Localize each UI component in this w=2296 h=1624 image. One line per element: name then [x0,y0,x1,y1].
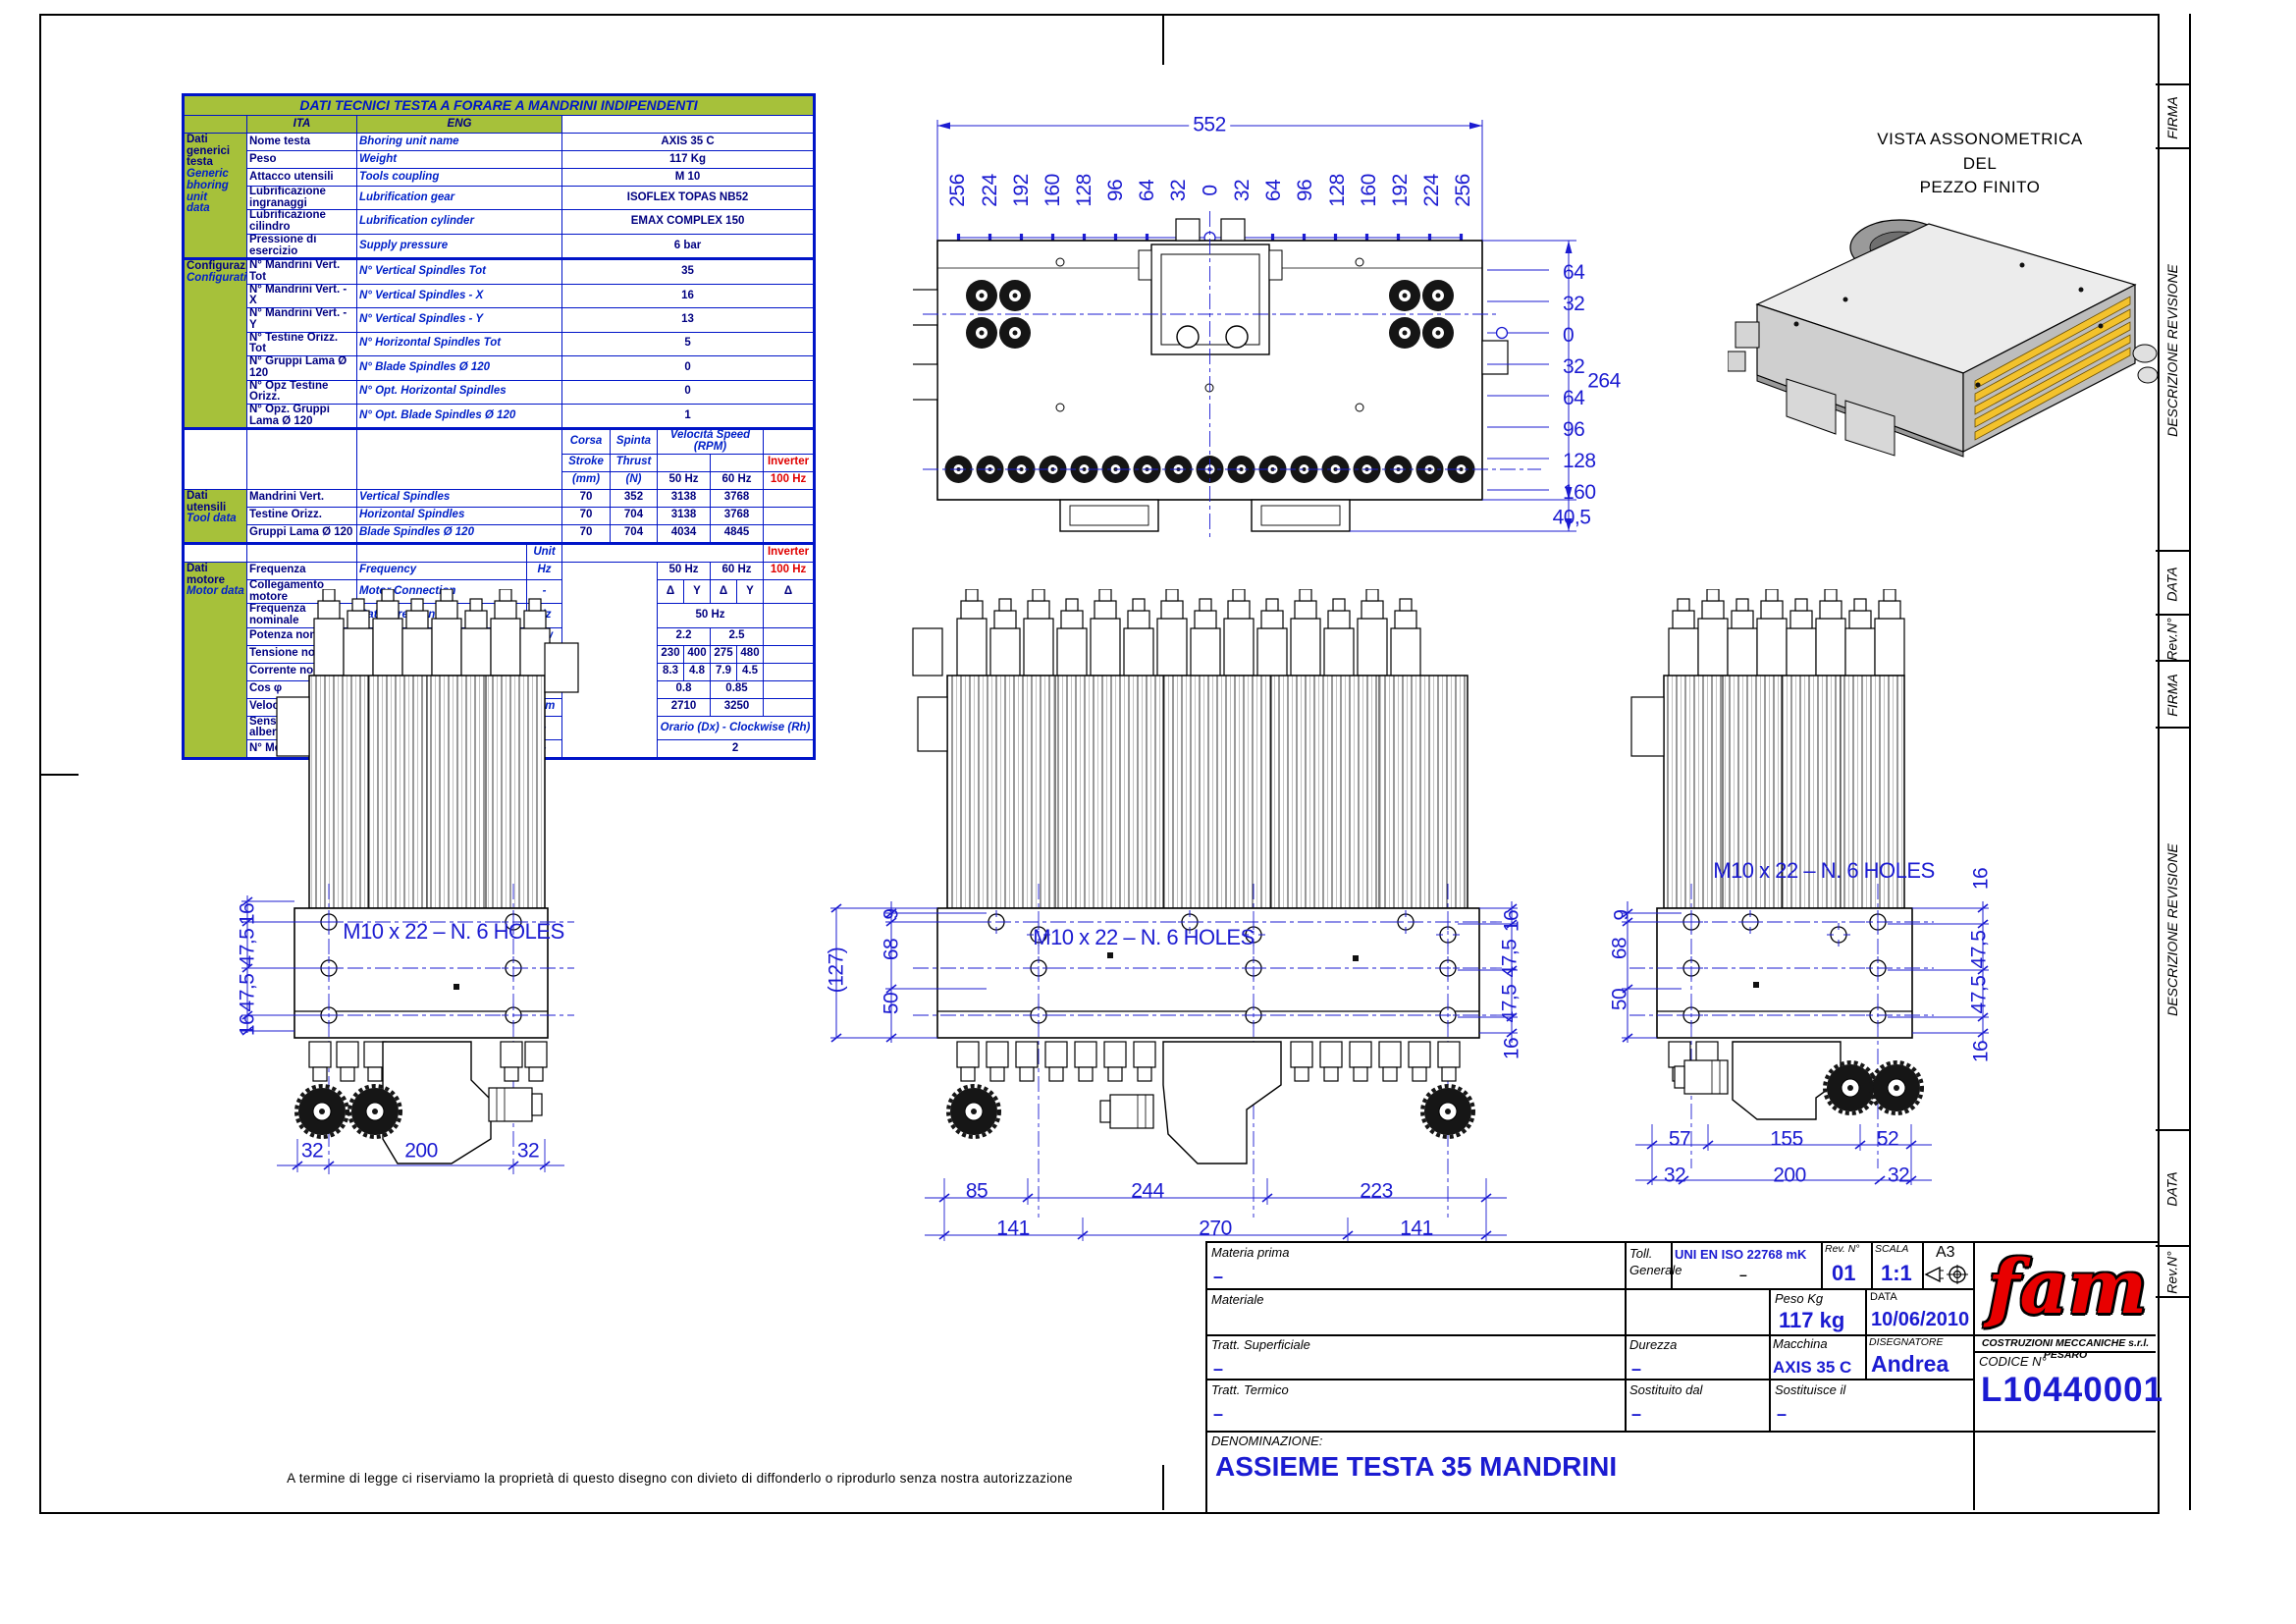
sost-il-value: – [1777,1404,1787,1425]
holes-note: M10 x 22 – N. 6 HOLES [1033,927,1255,948]
dim-label: 223 [1360,1181,1393,1202]
dim-label: 64 [1563,257,1596,289]
cell-ita: Gruppi Lama Ø 120 [247,524,357,543]
unit-inverter: Inverter [764,543,815,562]
data-value: 10/06/2010 [1871,1309,1969,1331]
cell-spinta: 704 [611,507,658,524]
iso-title-line3: PEZZO FINITO [1920,178,2041,197]
dim-label: 160 [1563,477,1596,509]
toll-value: UNI EN ISO 22768 mK [1675,1247,1806,1262]
cell-eng: Vertical Spindles [357,489,562,507]
dim-label: 200 [1773,1165,1806,1186]
unit-header: Unit [527,543,562,562]
section-label-config: Configurazione Configuration [184,259,247,429]
peso-value: 117 kg [1779,1308,1844,1333]
centering-mark [1162,1465,1164,1510]
top-ordinate-labels: 2562241921601289664320326496128160192224… [942,153,1480,228]
dim-label: 85 [966,1181,988,1202]
rev-n-label: Rev.N° [2164,618,2180,660]
dim-label: 244 [1131,1181,1164,1202]
cell-eng: N° Vertical Spindles - X [357,284,562,307]
tool-header-60hz: 60 Hz [711,471,764,489]
toll-label: Toll. [1629,1246,1652,1261]
cell-eng: N° Vertical Spindles Tot [357,259,562,284]
dim-label: 32 [301,1141,323,1162]
holes-note: M10 x 22 – N. 6 HOLES [1713,860,1935,882]
cell-corsa: 70 [562,507,611,524]
cell-eng: N° Opt. Horizontal Spindles [357,380,562,404]
left-view-linework [241,589,578,1178]
tool-header-mm: (mm) [562,471,611,489]
cell-corsa: 70 [562,524,611,543]
projection-symbol-icon [1924,1265,1971,1284]
dim-label: 160 [1358,174,1381,207]
legal-disclaimer: A termine di legge ci riserviamo la prop… [231,1471,1129,1486]
cell-v50: 3138 [658,489,711,507]
cell-v60: 4845 [711,524,764,543]
dim-label: 16 [238,1014,258,1036]
scala-value: 1:1 [1881,1261,1912,1286]
dim-label: 47,5 [238,929,258,967]
denominazione-value: ASSIEME TESTA 35 MANDRINI [1215,1451,1617,1483]
scala-label: SCALA [1875,1243,1908,1255]
cell-value: 35 [562,259,815,284]
drawing-sheet: FIRMA DESCRIZIONE REVISIONE DATA Rev.N° … [0,0,2296,1624]
dim-label: 192 [1009,174,1033,207]
col-header-eng: ENG [357,116,562,134]
dim-label: 32 [1167,180,1191,201]
durezza-label: Durezza [1629,1337,1677,1352]
dim-label: 141 [996,1218,1030,1239]
tratt-sup-label: Tratt. Superficiale [1211,1337,1310,1352]
cell-ita: Nome testa [247,134,357,151]
motor-header-50hz: 50 Hz [658,562,711,579]
dim-label: 47,5 [238,974,258,1012]
dim-label: 16 [238,903,258,925]
cell-eng: Bhoring unit name [357,134,562,151]
cell-v50: 3138 [658,507,711,524]
dim-label: 96 [1104,180,1128,201]
cell-eng: N° Horizontal Spindles Tot [357,332,562,355]
cell-spinta: 352 [611,489,658,507]
tool-header-spinta: Spinta [611,429,658,454]
col-header-ita: ITA [247,116,357,134]
cell-ita: Testine Orizz. [247,507,357,524]
dim-label: 57 [1669,1129,1690,1150]
cell-ita: Lubrificazione ingranaggi [247,187,357,210]
firma-label: FIRMA [2164,96,2180,139]
sost-dal-label: Sostituito dal [1629,1382,1702,1397]
dim-label: 47,5 [1500,940,1521,978]
tool-header-velocita: Velocità Speed (RPM) [658,429,764,454]
dim-label: 64 [1262,180,1286,201]
toll-label2: Generale [1629,1263,1682,1277]
data-label: DATA [1870,1291,1897,1303]
dim-label: 47,5 [1969,931,1990,969]
sost-il-label: Sostituisce il [1775,1382,1845,1397]
fam-logo: fam [1981,1243,2154,1329]
format-label: A3 [1936,1244,1955,1262]
cell-eng: Frequency [357,562,527,579]
descrizione-revisione-label: DESCRIZIONE REVISIONE [2164,843,2180,1016]
cell-value: M 10 [562,169,815,187]
section-label-generic: Dati generici testa Generic bhoring unit… [184,134,247,259]
dim-label: 9 [881,908,902,919]
rev-value: 01 [1832,1261,1855,1286]
cell-value: 13 [562,308,815,332]
tool-header-thrust: Thrust [611,454,658,471]
denominazione-label: DENOMINAZIONE: [1211,1434,1322,1448]
cell-value: 0 [562,380,815,404]
cell-eng: Tools coupling [357,169,562,187]
motor-header-60hz: 60 Hz [711,562,764,579]
isometric-view-image [1728,206,2160,471]
dim-label: 0 [1200,185,1223,195]
cell-value: 16 [562,284,815,307]
firma-label: FIRMA [2164,674,2180,717]
codice-value: L10440001 [1981,1371,2163,1410]
cell-ita: N° Testine Orizz. Tot [247,332,357,355]
descrizione-revisione-label: DESCRIZIONE REVISIONE [2164,264,2180,437]
macchina-label: Macchina [1773,1336,1828,1351]
revision-strip-cell-data2: DATA [2156,1129,2189,1247]
cell-eng: Weight [357,151,562,169]
dim-label: 96 [1294,180,1317,201]
cell-corsa: 70 [562,489,611,507]
iso-title-line1: VISTA ASSONOMETRICA [1877,130,2082,149]
centering-mark [1162,14,1164,65]
cell-ita: N° Mandrini Vert. - X [247,284,357,307]
dim-label: 192 [1389,174,1413,207]
dim-label: 224 [1420,174,1444,207]
dim-label: 96 [1563,414,1596,446]
cell-eng: Lubrification gear [357,187,562,210]
disegnatore-label: DISEGNATORE [1869,1336,1943,1348]
revision-strip-cell-descrizione2: DESCRIZIONE REVISIONE [2156,727,2189,1131]
right-view-linework [1622,589,1989,1185]
cell-v60: 3768 [711,507,764,524]
holes-note: M10 x 22 – N. 6 HOLES [343,921,564,943]
cell-ita: Attacco utensili [247,169,357,187]
dim-label: 16 [1502,1038,1522,1059]
materia-prima-label: Materia prima [1211,1245,1289,1260]
dim-label: 52 [1877,1129,1898,1150]
tool-header-stroke: Stroke [562,454,611,471]
dim-label: 270 [1199,1218,1232,1239]
tratt-term-value: – [1213,1404,1223,1425]
dim-label: 64 [1136,180,1159,201]
codice-label: CODICE N° [1979,1354,2047,1369]
disegnatore-value: Andrea [1871,1351,1949,1378]
dim-label: 32 [1888,1165,1909,1186]
dim-label: 128 [1563,446,1596,477]
dim-label: 128 [1073,174,1096,207]
dim-label: 32 [1664,1165,1685,1186]
dim-top-height: 264 [1584,371,1624,392]
dim-label: 32 [1231,180,1255,201]
dim-top-foot: 40,5 [1553,508,1591,528]
tool-header-corsa: Corsa [562,429,611,454]
cell-ita: N° Opz. Gruppi Lama Ø 120 [247,404,357,428]
table-title: DATI TECNICI TESTA A FORARE A MANDRINI I… [184,95,815,116]
cell-ita: N° Opz Testine Orizz. [247,380,357,404]
dim-label: 256 [946,174,970,207]
materiale-label: Materiale [1211,1292,1263,1307]
cell-eng: Supply pressure [357,234,562,258]
revision-strip-cell-firma: FIRMA [2156,83,2189,149]
cell-eng: Lubrification cylinder [357,210,562,234]
dim-top-width: 552 [1189,115,1230,135]
dim-label: 128 [1325,174,1349,207]
cell-value: AXIS 35 C [562,134,815,151]
dim-label: 50 [881,993,902,1014]
dim-label: 9 [1612,909,1632,920]
tratt-term-label: Tratt. Termico [1211,1382,1289,1397]
dim-label: 141 [1400,1218,1433,1239]
dim-label: 16 [1971,1041,1992,1062]
cell-value: 6 bar [562,234,815,258]
dim-label: 47,5 [1969,976,1990,1014]
macchina-value: AXIS 35 C [1773,1358,1851,1378]
materia-prima-value: – [1213,1267,1223,1287]
data-label: DATA [2164,1171,2180,1206]
dim-label: 16 [1502,910,1522,932]
revision-strip-cell-descrizione: DESCRIZIONE REVISIONE [2156,147,2189,552]
tool-header-100hz: 100 Hz [764,471,815,489]
cell-ita: N° Mandrini Vert. - Y [247,308,357,332]
revision-strip-cell-revn: Rev.N° [2156,614,2189,662]
cell-ita: Lubrificazione cilindro [247,210,357,234]
dim-label: 256 [1452,174,1475,207]
cell-ita: N° Gruppi Lama Ø 120 [247,356,357,380]
cell-unit: Hz [527,562,562,579]
cell-eng: N° Blade Spindles Ø 120 [357,356,562,380]
cell-value: ISOFLEX TOPAS NB52 [562,187,815,210]
iso-title-line2: DEL [1963,154,1998,174]
cell-ita: Pressione di esercizio [247,234,357,258]
revision-strip-cell-data: DATA [2156,550,2189,616]
cell-v50: 4034 [658,524,711,543]
peso-label: Peso Kg [1775,1291,1823,1306]
dim-label: 68 [1610,938,1630,959]
dim-label: 50 [1610,989,1630,1010]
motor-header-100hz: 100 Hz [764,562,815,579]
cell-ita: Mandrini Vert. [247,489,357,507]
cell-value: 5 [562,332,815,355]
dim-label: 155 [1770,1129,1803,1150]
cell-v60: 3768 [711,489,764,507]
section-label-tool: Dati utensili Tool data [184,489,247,543]
cell-ita: N° Mandrini Vert. Tot [247,259,357,284]
tool-header-50hz: 50 Hz [658,471,711,489]
dim-label: 16 [1971,868,1992,890]
revision-strip-cell-revn2: Rev.N° [2156,1245,2189,1298]
revision-strip-cell-firma2: FIRMA [2156,660,2189,729]
tool-header-inverter: Inverter [764,454,815,471]
centering-mark [39,774,79,776]
dim-label: 68 [881,939,902,960]
cell-spinta: 704 [611,524,658,543]
cell-value: 0 [562,356,815,380]
cell-value: 1 [562,404,815,428]
cell-value: 117 Kg [562,151,815,169]
data-label: DATA [2164,567,2180,601]
cell-eng: Blade Spindles Ø 120 [357,524,562,543]
center-view-linework [830,589,1518,1241]
durezza-value: – [1631,1359,1641,1380]
dim-label: 47,5 [1500,985,1521,1023]
rev-n-label: Rev.N° [2164,1251,2180,1293]
cell-ita: Peso [247,151,357,169]
rev-label: Rev. N° [1825,1243,1860,1255]
dim-label: 224 [978,174,1001,207]
dim-label: 160 [1041,174,1065,207]
cell-ita: Frequenza [247,562,357,579]
cell-eng: Horizontal Spindles [357,507,562,524]
dim-label: 200 [404,1141,438,1162]
sost-dal-value: – [1631,1404,1641,1425]
dim-label: 32 [517,1141,539,1162]
toll-value2: – [1739,1267,1747,1282]
tool-header-n: (N) [611,471,658,489]
dim-label: 0 [1563,320,1596,352]
tratt-sup-value: – [1213,1359,1223,1380]
cell-value: EMAX COMPLEX 150 [562,210,815,234]
cell-eng: N° Opt. Blade Spindles Ø 120 [357,404,562,428]
dim-label: 32 [1563,289,1596,320]
dim-label: (127) [827,947,847,994]
cell-eng: N° Vertical Spindles - Y [357,308,562,332]
